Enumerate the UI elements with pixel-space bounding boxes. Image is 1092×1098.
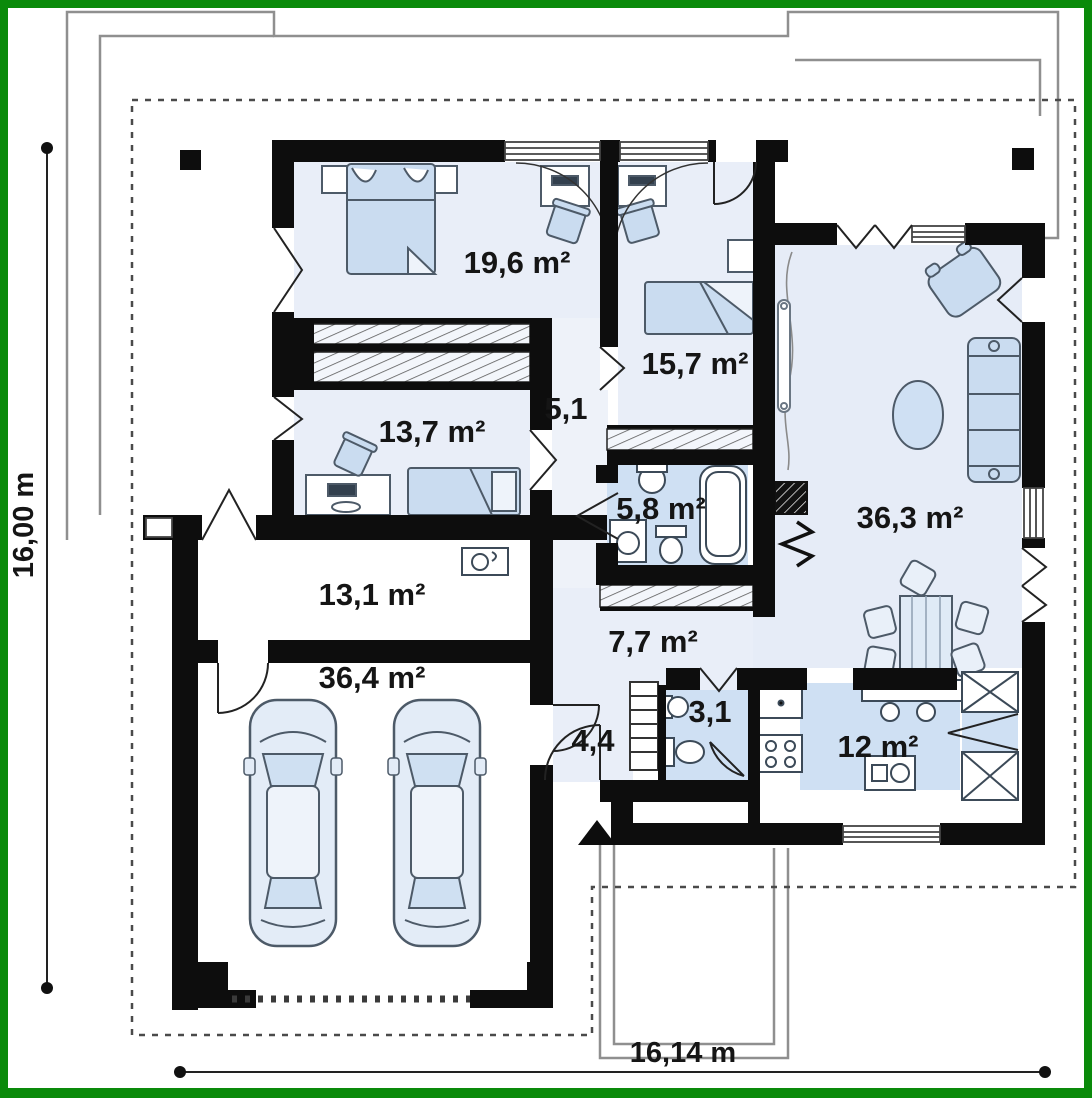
label-vestibule: 4,4 [571,723,615,758]
label-hall: 7,7 m² [608,624,698,659]
car-icon [244,700,342,946]
radiator-icon [778,300,790,412]
utility-fixtures [462,548,508,575]
label-corridor: 5,1 [544,391,587,426]
wall-vestibule-south [633,780,753,802]
wardrobe-strip-3 [607,429,753,450]
wall-kitchen-north-2 [853,668,957,690]
utility-sink-icon [462,548,508,575]
roof-contour-inner-left [100,36,274,515]
wall-front-connector [611,780,633,825]
stove-icon [758,735,802,772]
side-door-icon [202,490,256,540]
wall-east-2 [1022,322,1045,488]
wall-east-3 [1022,622,1045,845]
label-bathroom: 5,8 m² [616,491,706,526]
wall-wing-band [256,515,607,540]
label-living-room: 36,3 m² [857,500,964,535]
garage-cars [244,700,486,946]
nightstand-icon [322,166,347,193]
window-icon [505,142,600,160]
stool-icon [917,703,935,721]
chair-icon [863,605,897,639]
window-icon [843,826,940,842]
wall-top-1 [272,140,505,162]
label-utility: 13,1 m² [319,577,426,612]
entrance-arrow-icon [578,820,616,845]
wall-wc-north-1 [666,668,700,690]
hall-living-opening-floor [753,617,775,668]
label-garage: 36,4 m² [319,660,426,695]
stool-icon [881,703,899,721]
wc-sink-icon [668,697,688,717]
window-icon [146,518,172,537]
label-bedroom-1: 19,6 m² [464,245,571,280]
wall-bedroom-divider [600,162,618,347]
roof-contour-inner-right [795,60,1040,116]
chair-icon [955,601,990,636]
wall-living-north-1 [753,223,837,245]
wardrobe-strip-4 [600,585,753,607]
label-wc: 3,1 [688,694,731,729]
corridor-pocket-floor [552,318,600,390]
sofa-icon [968,338,1020,482]
fireplace-icon [775,482,807,514]
window-icon [912,226,965,242]
wall-left-upper [272,140,294,228]
label-bedroom-3: 13,7 m² [379,414,486,449]
floor-plan-page: 16,00 m 16,14 m 19,6 m² 15,7 m² 13,7 m² … [0,0,1092,1098]
dimension-bottom-label: 16,14 m [630,1037,736,1069]
nightstand-icon [728,240,754,272]
wall-south-2 [940,823,1045,845]
wall-wc-west [658,685,666,780]
floor-plan-canvas: 16,00 m 16,14 m 19,6 m² 15,7 m² 13,7 m² … [0,0,1092,1098]
wall-kitchen-north-1 [760,668,807,690]
wall-utility-east [530,540,553,663]
roof-post [180,150,201,170]
wardrobe-strip-1 [294,324,530,344]
window-icon [1024,488,1043,538]
entrance-porch-outer [600,845,788,1058]
pillow-icon [492,472,516,511]
wall-living-north-2 [965,223,1045,245]
wall-east-1 [1022,243,1045,278]
wall-bathroom-north [607,450,753,465]
wall-kitchen-west [748,668,760,823]
label-kitchen: 12 m² [838,729,919,764]
toilet-icon [656,526,686,537]
garden-double-door-icon [1022,548,1046,622]
pantry-niche-floor [962,712,1018,752]
oval-table-icon [893,381,943,449]
window-icon [620,142,708,160]
roof-post [1012,148,1034,170]
label-bedroom-2: 15,7 m² [642,346,749,381]
wall-west-lower [172,515,198,1010]
wall-bathroom-west [596,465,618,483]
wardrobe-strip-2 [294,352,530,382]
car-icon [388,700,486,946]
entrance-porch-inner [614,845,774,1044]
dimension-left: 16,00 m [8,142,53,994]
dimension-left-label: 16,00 m [8,472,40,578]
vestibule-coat-rack [630,682,658,770]
terrace-double-door-icon [837,225,912,248]
wall-south-1 [611,823,843,845]
wall-bathroom-south [596,565,753,585]
